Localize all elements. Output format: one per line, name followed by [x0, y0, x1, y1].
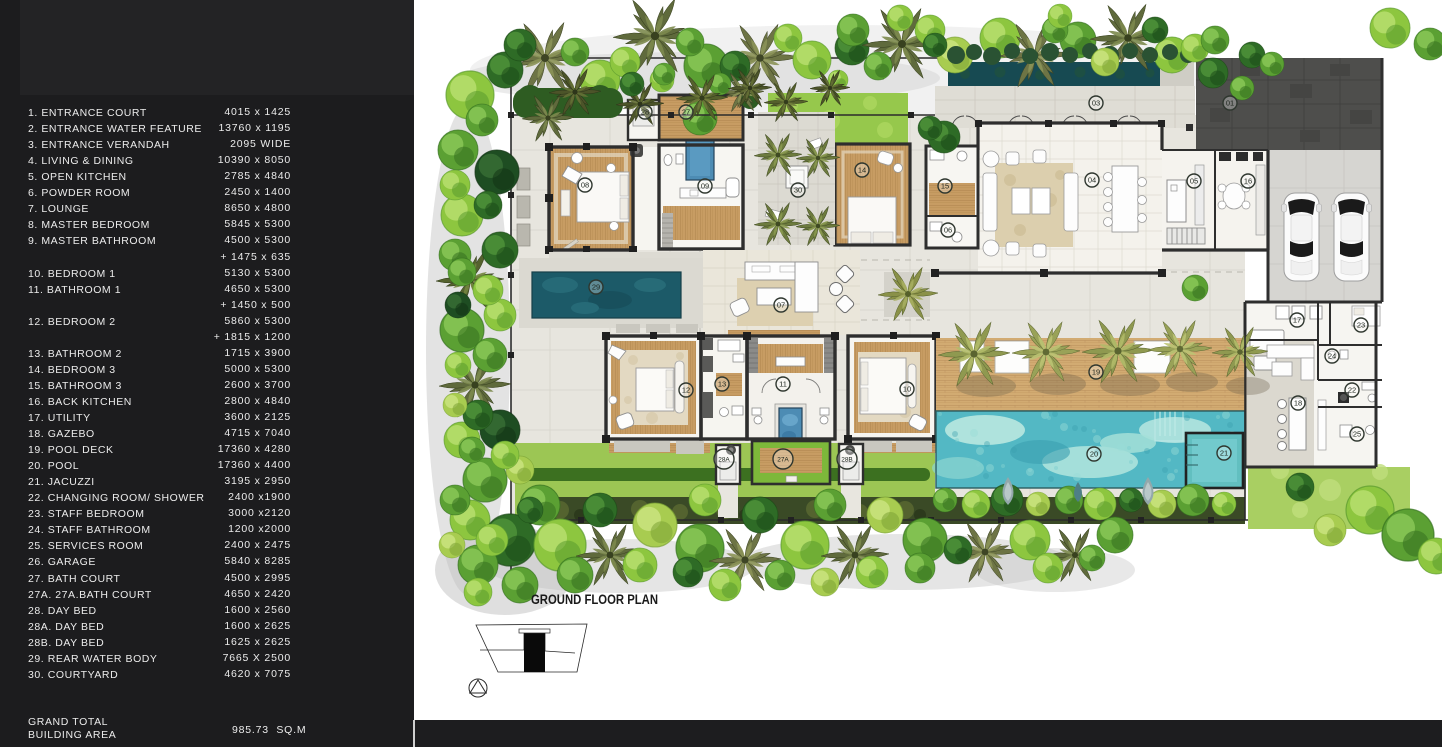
svg-text:28A: 28A	[718, 456, 730, 463]
svg-text:12: 12	[682, 386, 690, 395]
svg-text:08: 08	[581, 181, 589, 190]
svg-text:04: 04	[1088, 176, 1096, 185]
svg-text:03: 03	[1092, 99, 1100, 108]
svg-text:13: 13	[718, 380, 726, 389]
svg-text:09: 09	[701, 182, 709, 191]
svg-text:05: 05	[1190, 177, 1198, 186]
svg-text:GROUND FLOOR PLAN: GROUND FLOOR PLAN	[531, 592, 658, 607]
svg-text:28: 28	[641, 108, 649, 117]
svg-text:01: 01	[1226, 99, 1234, 108]
svg-text:30: 30	[794, 186, 802, 195]
svg-text:20: 20	[1090, 450, 1098, 459]
svg-text:19: 19	[1092, 368, 1100, 377]
svg-text:06: 06	[944, 226, 952, 235]
svg-text:16: 16	[1244, 177, 1252, 186]
svg-text:15: 15	[941, 182, 949, 191]
svg-text:29: 29	[592, 283, 600, 292]
svg-text:28B: 28B	[841, 456, 853, 463]
svg-text:24: 24	[1328, 352, 1336, 361]
svg-text:10: 10	[903, 385, 911, 394]
svg-text:21: 21	[1220, 449, 1228, 458]
svg-text:11: 11	[779, 380, 787, 389]
svg-text:25: 25	[1353, 430, 1361, 439]
svg-text:07: 07	[777, 301, 785, 310]
svg-text:27: 27	[682, 108, 690, 117]
svg-text:27A: 27A	[777, 456, 789, 463]
svg-text:17: 17	[1293, 316, 1301, 325]
svg-text:23: 23	[1357, 321, 1365, 330]
svg-text:22: 22	[1348, 386, 1356, 395]
svg-text:18: 18	[1294, 399, 1302, 408]
svg-text:14: 14	[858, 166, 866, 175]
